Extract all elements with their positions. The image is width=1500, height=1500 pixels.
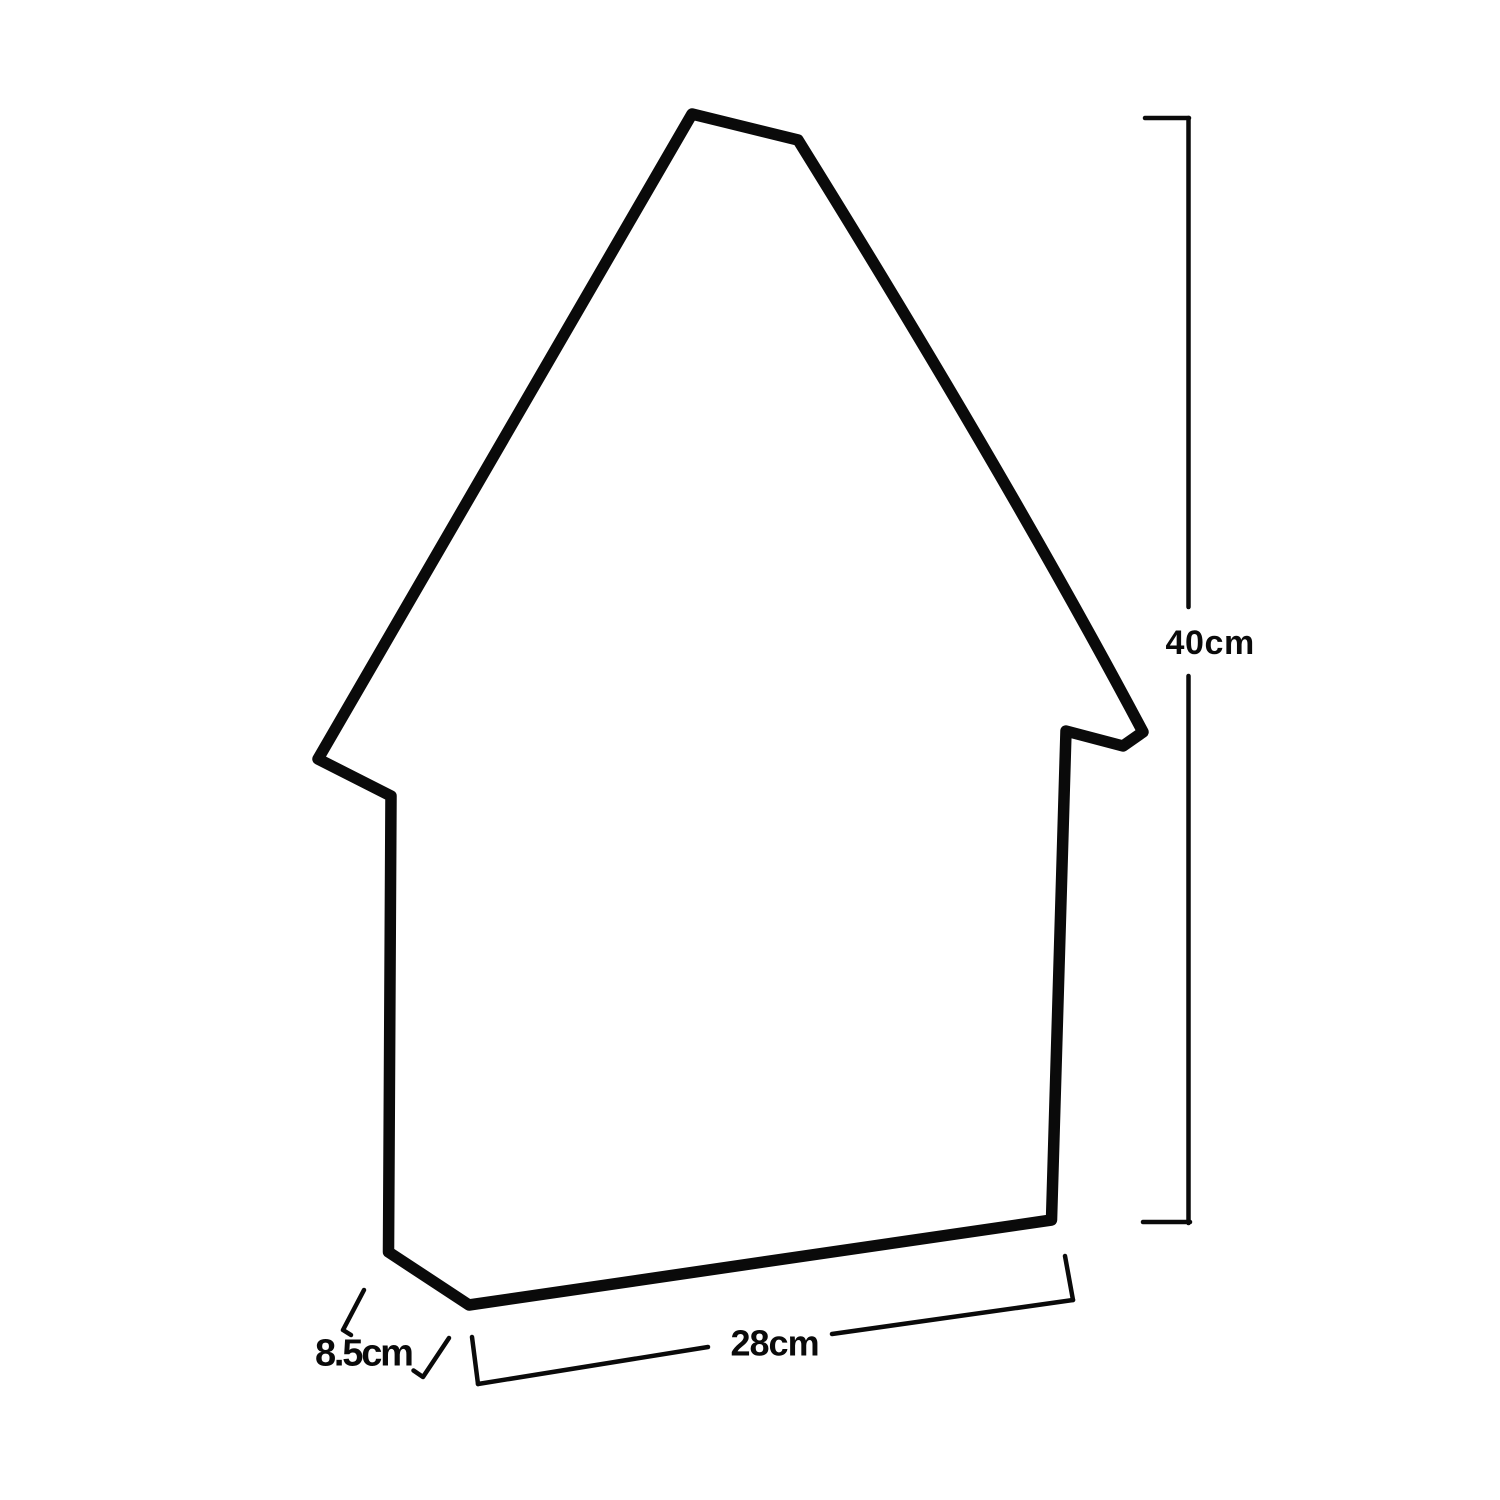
svg-text:8.5cm: 8.5cm — [315, 1333, 412, 1375]
svg-text:40cm: 40cm — [1166, 624, 1255, 662]
svg-text:28cm: 28cm — [731, 1323, 819, 1364]
